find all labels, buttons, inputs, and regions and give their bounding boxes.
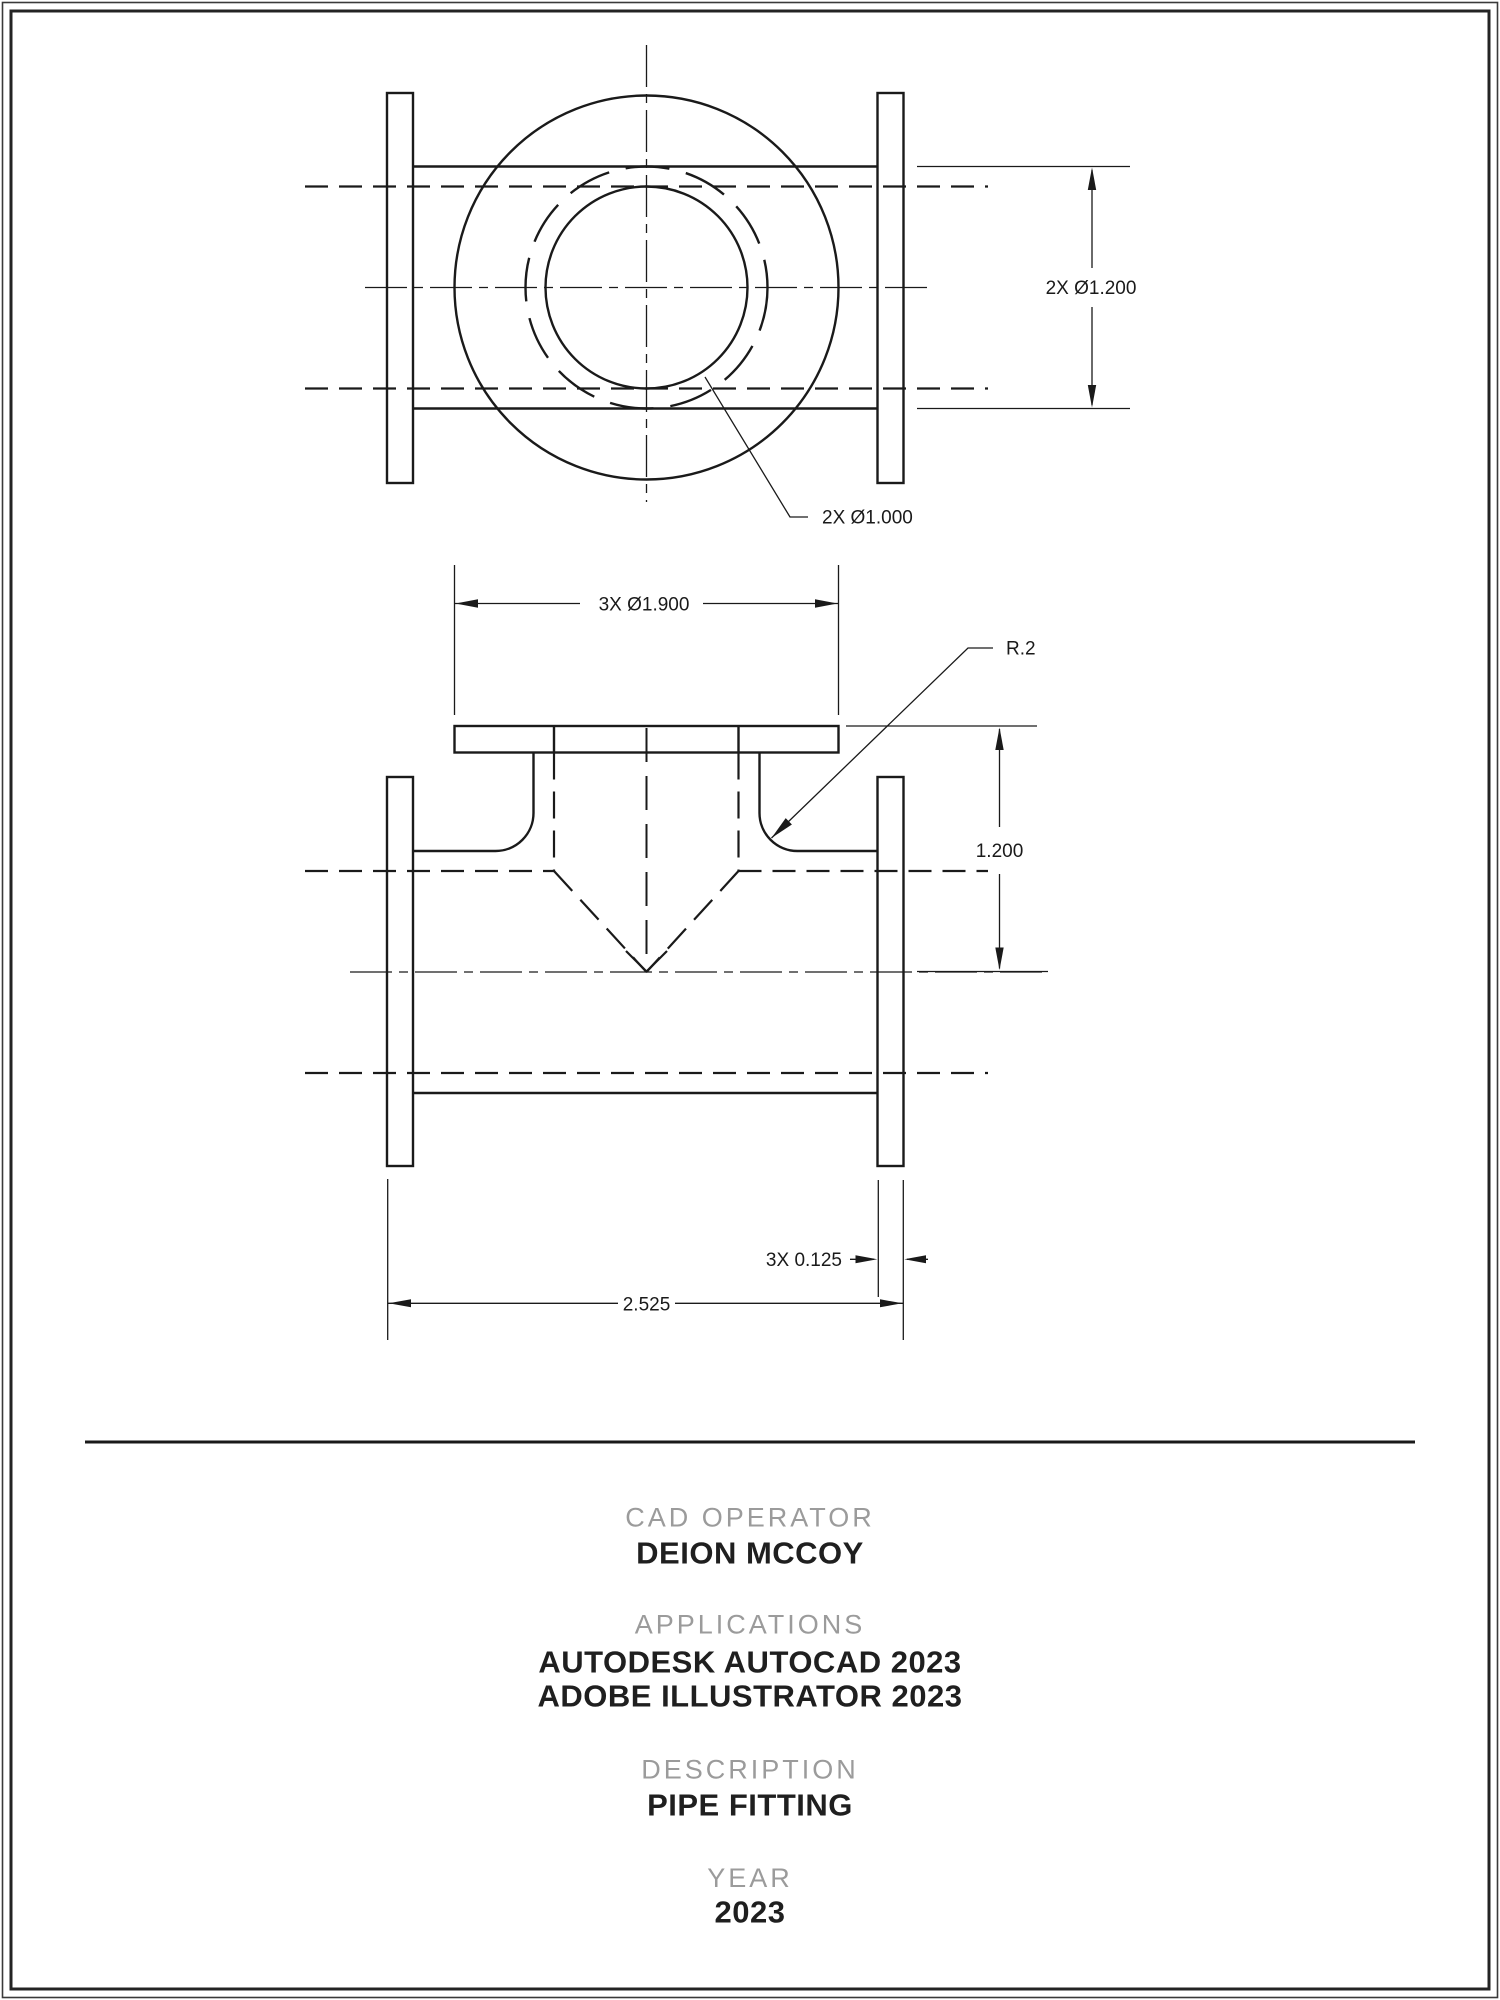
- arrowhead-down-icon: [995, 948, 1003, 971]
- dim-fillet-radius-label: R.2: [1006, 639, 1036, 660]
- arrowhead-right-icon: [856, 1255, 878, 1263]
- front-view: [305, 726, 1048, 1166]
- arrowhead-down-icon: [1088, 385, 1096, 408]
- top-view: [305, 45, 988, 502]
- applications-label: APPLICATIONS: [635, 1609, 866, 1639]
- arrowhead-up-icon: [995, 728, 1003, 751]
- title-block: CAD OPERATOR DEION MCCOY APPLICATIONS AU…: [538, 1502, 963, 1929]
- centerline-arrow-icon: [626, 951, 667, 972]
- applications-value-1: AUTODESK AUTOCAD 2023: [538, 1644, 961, 1679]
- arrowhead-left-icon: [456, 599, 479, 607]
- applications-value-2: ADOBE ILLUSTRATOR 2023: [538, 1678, 963, 1713]
- dim-pipe-od: 2X Ø1.200: [917, 167, 1136, 409]
- dim-branch-length-label: 1.200: [976, 841, 1024, 862]
- dim-overall-width-label: 2.525: [623, 1294, 671, 1315]
- dim-pipe-bore-label: 2X Ø1.000: [822, 508, 913, 529]
- arrowhead-right-icon: [880, 1299, 902, 1307]
- operator-label: CAD OPERATOR: [625, 1502, 875, 1532]
- arrowhead-up-icon: [1088, 168, 1096, 191]
- leader-pipe-bore: 2X Ø1.000: [705, 377, 913, 529]
- operator-value: DEION MCCOY: [636, 1535, 864, 1570]
- dim-pipe-od-label: 2X Ø1.200: [1046, 278, 1137, 299]
- dim-flange-diameter: 3X Ø1.900: [455, 565, 839, 715]
- year-value: 2023: [715, 1894, 786, 1929]
- cad-drawing-sheet: 2X Ø1.200 2X Ø1.000: [0, 0, 1500, 2000]
- leader-line: [772, 648, 994, 838]
- arrowhead-right-icon: [815, 599, 838, 607]
- title-divider-line: [85, 1441, 1415, 1444]
- dim-branch-length: 1.200: [846, 726, 1048, 972]
- dim-flange-thickness-label: 3X 0.125: [766, 1250, 842, 1271]
- branch-right-wall-fillet: [760, 753, 879, 852]
- year-label: YEAR: [707, 1863, 793, 1893]
- description-label: DESCRIPTION: [641, 1754, 859, 1784]
- description-value: PIPE FITTING: [647, 1787, 853, 1822]
- leader-line: [705, 377, 808, 517]
- arrowhead-left-icon: [389, 1299, 411, 1307]
- branch-left-wall-fillet: [413, 753, 534, 852]
- arrowhead-left-icon: [904, 1255, 926, 1263]
- dim-flange-diameter-label: 3X Ø1.900: [599, 595, 690, 616]
- dim-flange-thickness: 3X 0.125: [766, 1180, 928, 1340]
